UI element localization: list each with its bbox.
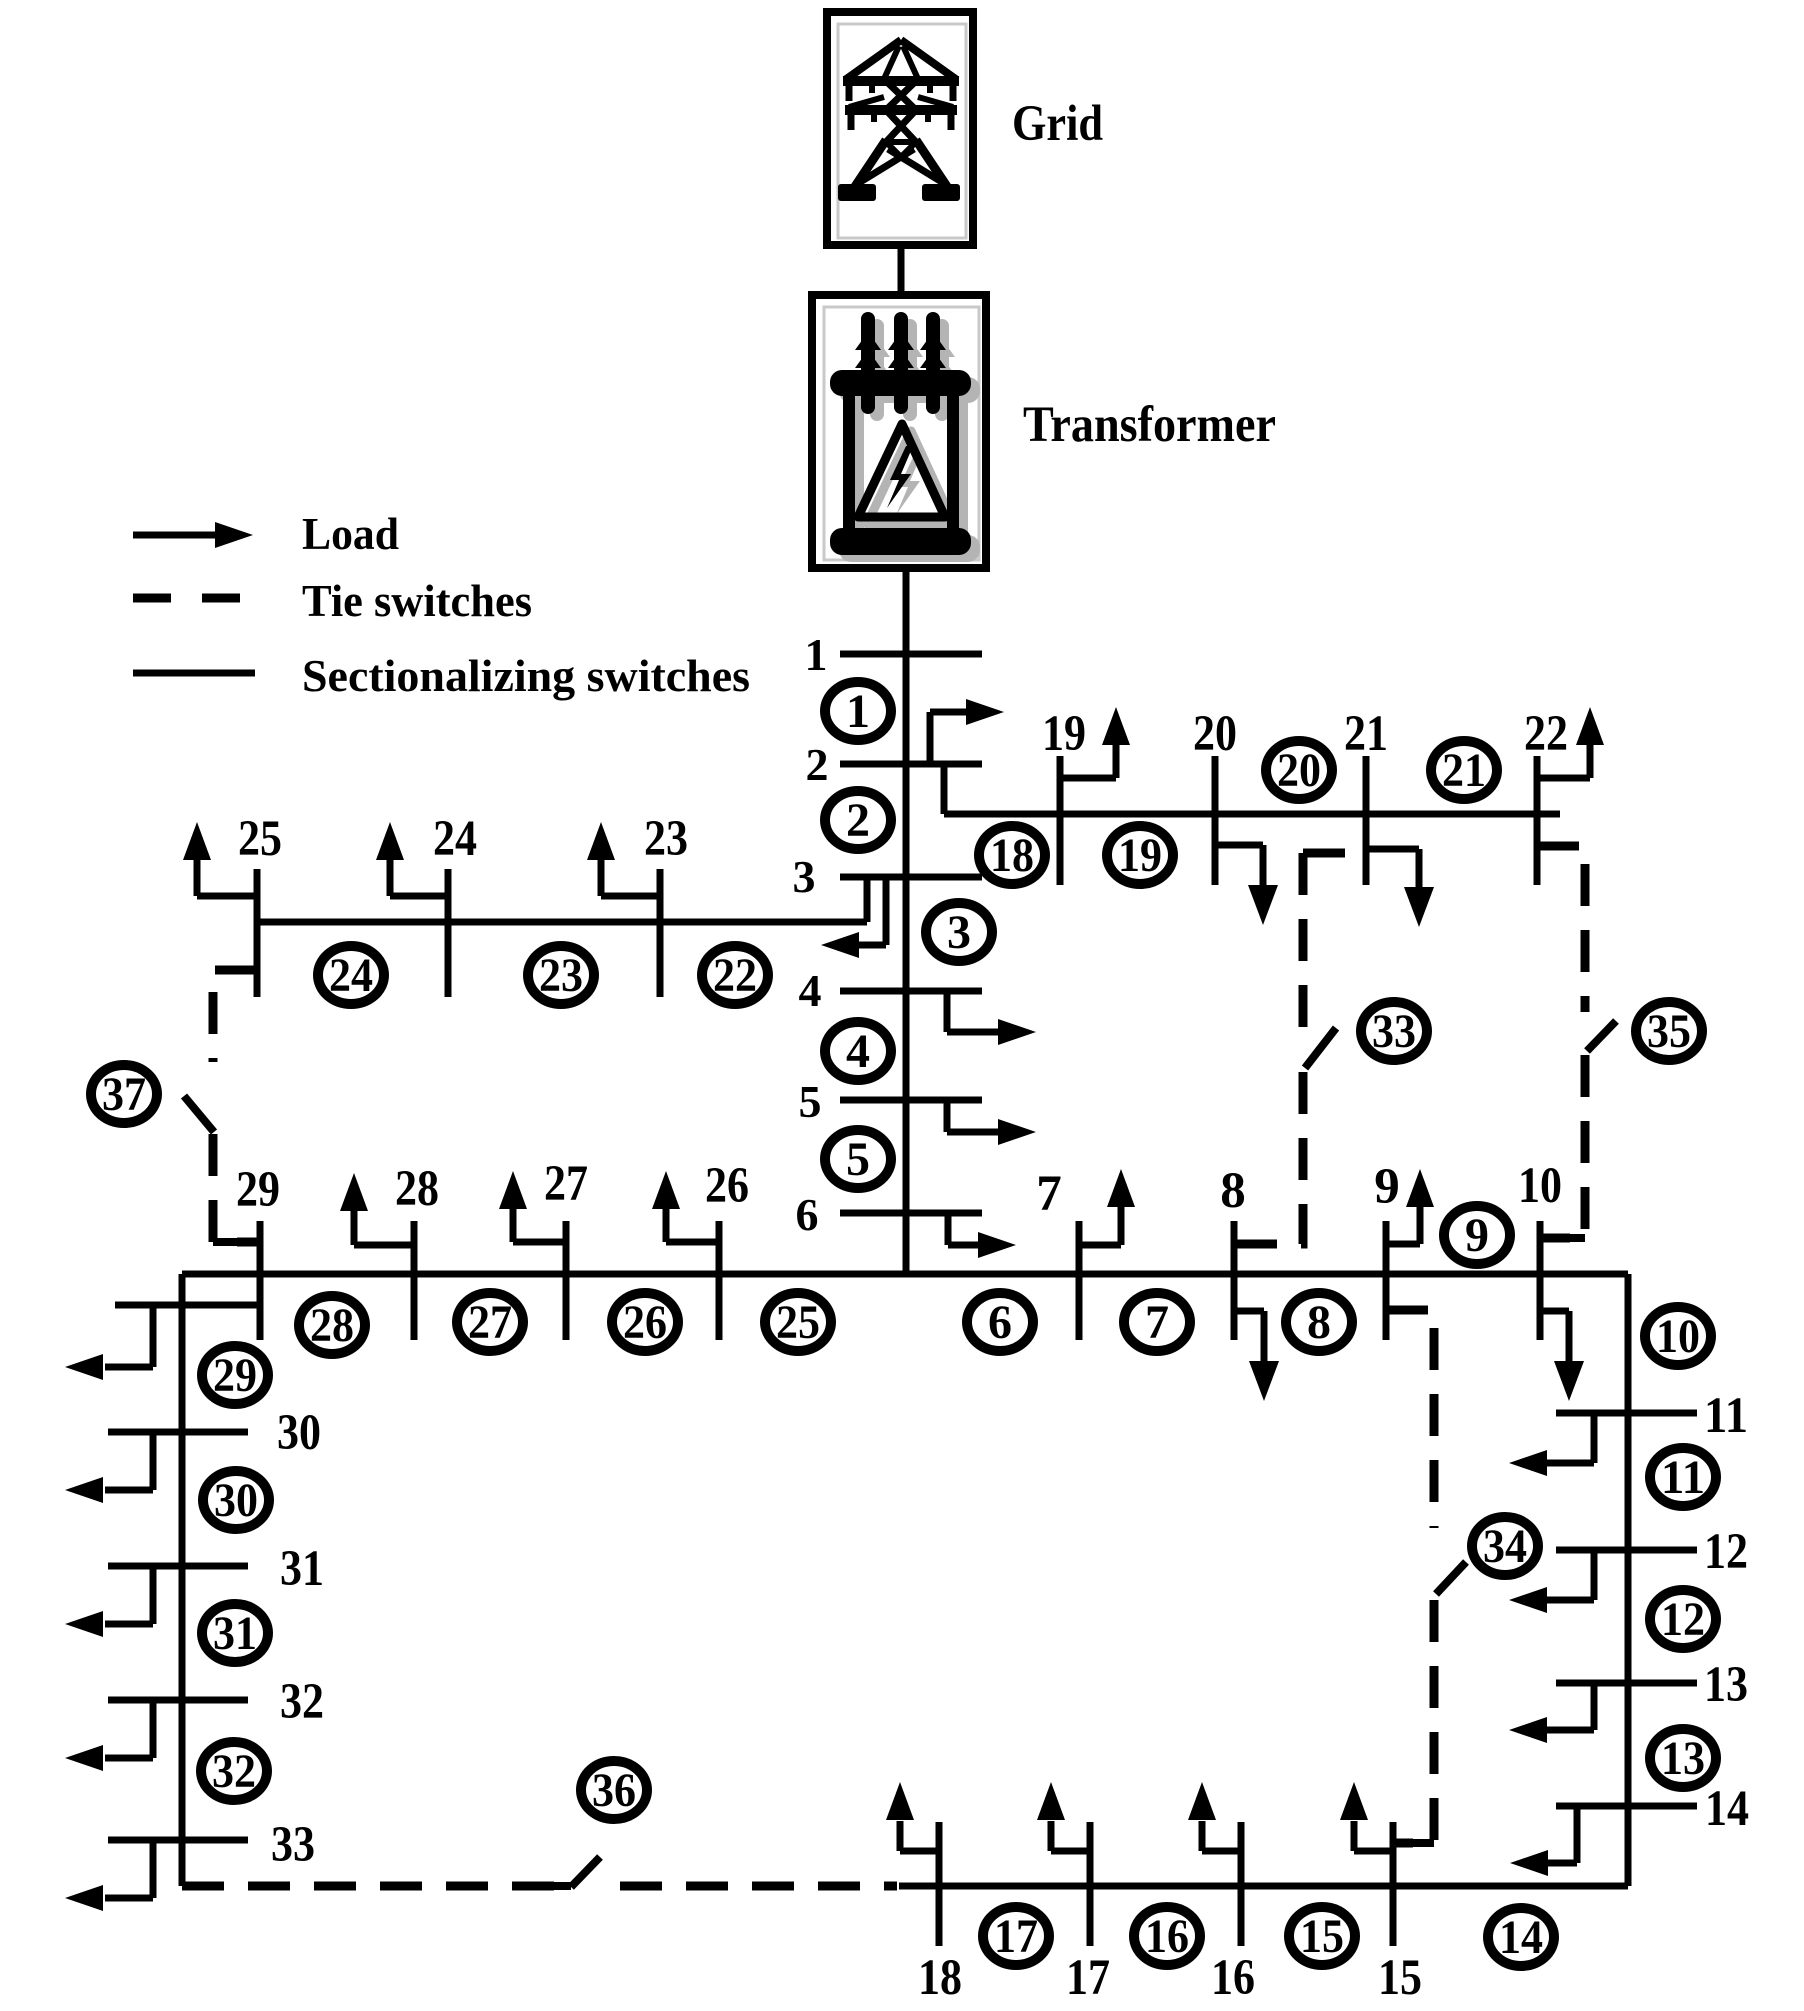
svg-text:14: 14	[1499, 1911, 1543, 1964]
svg-text:26: 26	[705, 1158, 749, 1214]
svg-text:1: 1	[805, 629, 828, 680]
svg-text:30: 30	[214, 1474, 258, 1527]
svg-text:12: 12	[1661, 1593, 1705, 1646]
svg-text:2: 2	[806, 739, 829, 790]
svg-text:31: 31	[213, 1607, 257, 1660]
svg-text:1: 1	[846, 685, 870, 738]
svg-text:11: 11	[1704, 1388, 1748, 1444]
svg-text:29: 29	[236, 1162, 280, 1218]
svg-text:17: 17	[994, 1910, 1038, 1963]
svg-text:31: 31	[280, 1541, 324, 1597]
svg-text:10: 10	[1518, 1158, 1562, 1214]
svg-text:36: 36	[592, 1764, 636, 1817]
svg-text:9: 9	[1374, 1159, 1400, 1215]
svg-text:6: 6	[988, 1296, 1012, 1349]
svg-text:19: 19	[1042, 706, 1086, 762]
svg-text:22: 22	[713, 949, 757, 1002]
svg-text:7: 7	[1036, 1166, 1062, 1222]
svg-text:3: 3	[793, 851, 816, 902]
svg-text:15: 15	[1300, 1910, 1344, 1963]
svg-text:8: 8	[1307, 1296, 1331, 1349]
svg-text:34: 34	[1483, 1520, 1527, 1573]
svg-text:30: 30	[277, 1405, 321, 1461]
svg-text:21: 21	[1344, 706, 1388, 762]
svg-text:18: 18	[918, 1950, 962, 2006]
svg-text:Tie switches: Tie switches	[302, 575, 532, 626]
svg-text:15: 15	[1378, 1950, 1422, 2006]
svg-text:20: 20	[1193, 706, 1237, 762]
svg-text:Grid: Grid	[1012, 96, 1103, 152]
svg-text:28: 28	[310, 1299, 354, 1352]
svg-text:32: 32	[280, 1674, 324, 1730]
svg-text:27: 27	[544, 1156, 588, 1212]
svg-text:19: 19	[1118, 829, 1162, 882]
svg-text:Load: Load	[302, 508, 399, 559]
svg-text:12: 12	[1704, 1524, 1748, 1580]
svg-text:17: 17	[1066, 1950, 1110, 2006]
svg-text:24: 24	[329, 949, 373, 1002]
svg-text:4: 4	[846, 1025, 870, 1078]
svg-text:21: 21	[1442, 744, 1486, 797]
svg-text:8: 8	[1220, 1163, 1246, 1219]
svg-text:13: 13	[1704, 1657, 1748, 1713]
svg-text:26: 26	[623, 1296, 667, 1349]
svg-text:4: 4	[799, 965, 822, 1016]
svg-text:23: 23	[539, 949, 583, 1002]
svg-text:33: 33	[1372, 1005, 1416, 1058]
svg-text:7: 7	[1145, 1296, 1169, 1349]
svg-text:32: 32	[212, 1745, 256, 1798]
svg-text:25: 25	[776, 1296, 820, 1349]
svg-text:25: 25	[238, 811, 282, 867]
svg-text:5: 5	[799, 1076, 822, 1127]
svg-text:28: 28	[395, 1161, 439, 1217]
svg-text:16: 16	[1211, 1950, 1255, 2006]
svg-text:29: 29	[213, 1349, 257, 1402]
svg-text:27: 27	[468, 1296, 512, 1349]
svg-text:Transformer: Transformer	[1023, 397, 1276, 453]
svg-text:11: 11	[1661, 1451, 1705, 1504]
svg-text:16: 16	[1145, 1910, 1189, 1963]
svg-text:13: 13	[1661, 1732, 1705, 1785]
svg-text:33: 33	[271, 1817, 315, 1873]
svg-text:14: 14	[1705, 1781, 1749, 1837]
svg-text:Sectionalizing switches: Sectionalizing switches	[302, 650, 750, 701]
svg-text:5: 5	[846, 1133, 870, 1186]
svg-text:6: 6	[796, 1189, 819, 1240]
svg-text:2: 2	[846, 794, 870, 847]
svg-text:9: 9	[1465, 1209, 1489, 1262]
svg-text:22: 22	[1524, 706, 1568, 762]
svg-text:10: 10	[1656, 1310, 1700, 1363]
svg-text:18: 18	[990, 829, 1034, 882]
svg-text:23: 23	[644, 811, 688, 867]
svg-text:20: 20	[1277, 744, 1321, 797]
svg-text:35: 35	[1647, 1005, 1691, 1058]
svg-text:3: 3	[947, 906, 971, 959]
svg-text:37: 37	[102, 1068, 146, 1121]
svg-text:24: 24	[433, 811, 477, 867]
